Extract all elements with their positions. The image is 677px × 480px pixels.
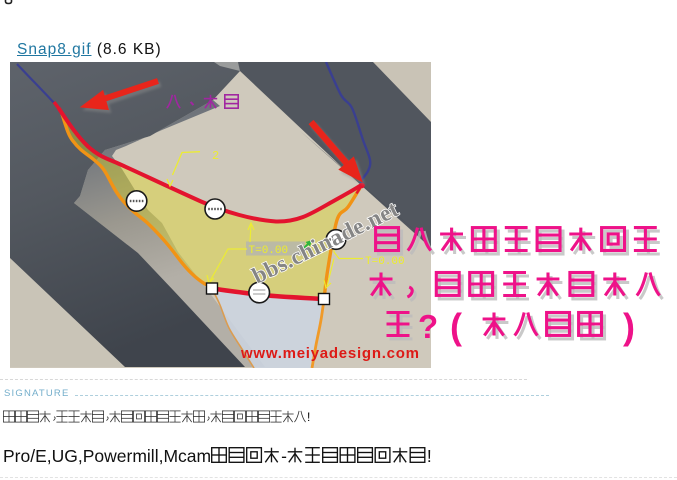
svg-text:(: ( <box>450 306 462 347</box>
svg-text:?: ? <box>418 308 438 345</box>
svg-text:2: 2 <box>212 149 219 163</box>
svg-text:): ) <box>623 306 635 347</box>
svg-text:!: ! <box>307 410 310 424</box>
